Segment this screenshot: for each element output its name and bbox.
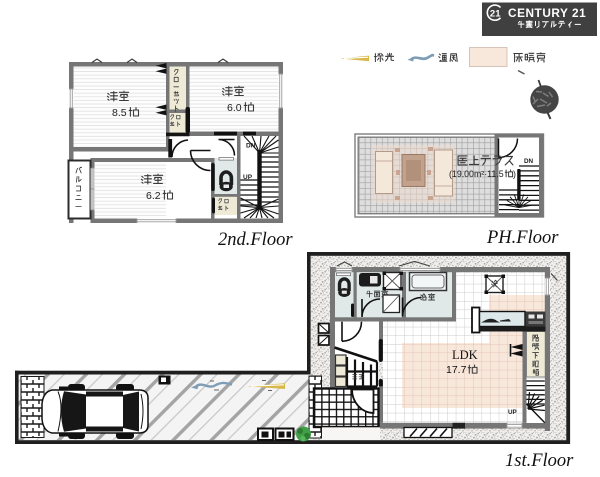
svg-text:1st.Floor: 1st.Floor [505,451,574,471]
svg-text:DN: DN [246,143,256,150]
svg-text:8.5: 8.5 [112,107,127,119]
svg-text:): ) [513,169,516,179]
svg-text:6.2: 6.2 [146,190,161,202]
svg-text:UP: UP [243,174,253,181]
svg-text:(19.00m²·11.5: (19.00m²·11.5 [449,169,504,179]
svg-text:LDK: LDK [452,348,478,362]
svg-text:17.7: 17.7 [446,364,467,376]
svg-text:DN: DN [524,158,534,165]
svg-text:2nd.Floor: 2nd.Floor [218,230,293,250]
svg-text:UP: UP [508,409,517,416]
svg-text:21: 21 [490,8,501,19]
svg-text:CENTURY 21: CENTURY 21 [508,6,586,20]
svg-text:PH.Floor: PH.Floor [486,228,559,248]
svg-text:6.0: 6.0 [227,102,242,114]
